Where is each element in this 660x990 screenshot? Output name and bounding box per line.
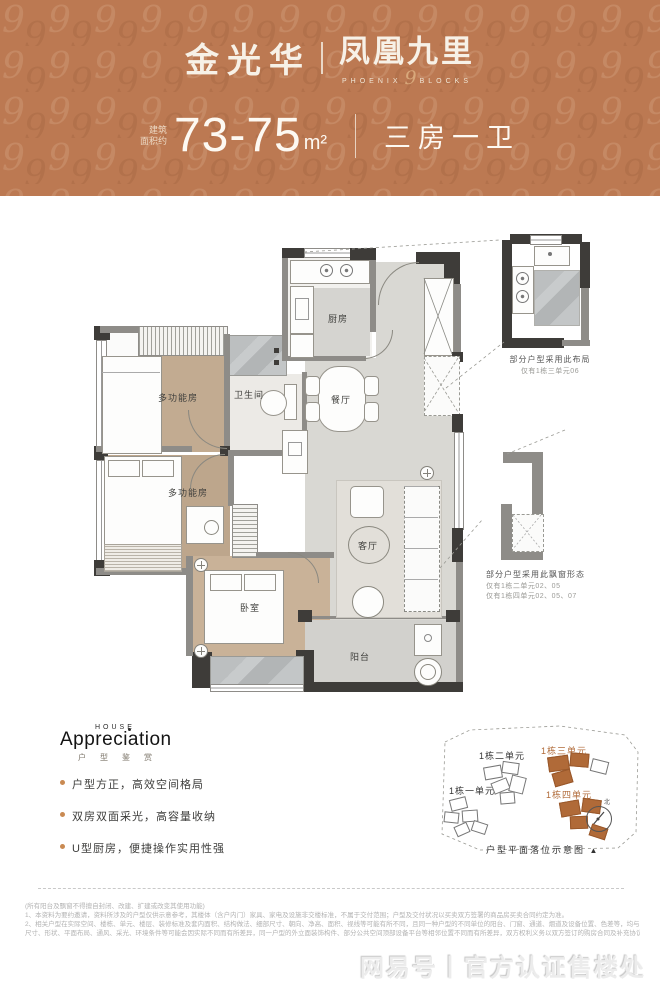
project-name: 凤凰九里 bbox=[339, 26, 475, 71]
dining-chair bbox=[364, 402, 379, 422]
project-name-en: PHOENIX 9 BLOCKS bbox=[342, 73, 472, 89]
building-footprint bbox=[500, 791, 516, 804]
feature-bullet: 双房双面采光，高容量收纳 bbox=[60, 808, 216, 824]
bay-window-dashed bbox=[424, 356, 460, 416]
header-banner: 9 9 金光华 凤凰九里 PHOENIX 9 BLOCKS 建筑 面积约 bbox=[0, 0, 660, 196]
pillow bbox=[210, 574, 242, 591]
callout-kitchen-note: 仅有1栋三单元06 bbox=[488, 366, 612, 376]
brand-row: 金光华 凤凰九里 PHOENIX 9 BLOCKS bbox=[0, 26, 660, 89]
bullet-dot-icon bbox=[60, 812, 65, 817]
room-label-kitchen: 厨房 bbox=[328, 312, 348, 325]
room-label-dining: 餐厅 bbox=[331, 393, 351, 406]
bed-pillow-line bbox=[102, 372, 160, 373]
callout-burner-icon bbox=[516, 272, 529, 285]
callout-burner-icon bbox=[516, 290, 529, 303]
compass-icon bbox=[586, 806, 612, 832]
wall-segment bbox=[370, 260, 376, 332]
toilet-bowl bbox=[260, 390, 287, 416]
wall-segment bbox=[186, 556, 193, 656]
room-label-living: 客厅 bbox=[358, 539, 378, 552]
dining-chair bbox=[305, 402, 320, 422]
lounge-chair bbox=[352, 586, 384, 618]
washing-machine-drum bbox=[420, 664, 436, 680]
wall-segment bbox=[100, 326, 140, 333]
disclaimer-line: 尺寸、形状、平面布局、通风、采光、环境条件等可能会因实际不同而有所差异，同一户型… bbox=[25, 929, 640, 938]
siteplan-caption: 户型平面落位示意图 ▲ bbox=[486, 843, 597, 856]
area-prefix-line2: 面积约 bbox=[140, 136, 167, 146]
kitchen-cabinet bbox=[290, 334, 314, 358]
bullet-dot-icon bbox=[60, 844, 65, 849]
project-en-right: BLOCKS bbox=[420, 78, 472, 85]
callout-wall bbox=[502, 338, 564, 348]
callout-wall bbox=[581, 288, 589, 344]
balcony-sink-basin bbox=[424, 634, 432, 642]
building-footprint bbox=[471, 820, 489, 835]
callout-kitchen-title: 部分户型采用此布局 bbox=[488, 354, 612, 365]
siteplan-caption-text: 户型平面落位示意图 bbox=[486, 845, 585, 855]
dotted-divider bbox=[38, 888, 624, 889]
room-label-bathroom: 卫生间 bbox=[234, 388, 264, 401]
wall-segment bbox=[298, 610, 312, 622]
building-footprint-highlight bbox=[569, 752, 589, 768]
room-label-multi-lower: 多功能房 bbox=[168, 486, 208, 499]
feature-text: U型厨房，便捷操作实用性强 bbox=[72, 840, 225, 856]
kitchen-window bbox=[304, 248, 352, 258]
callout-window bbox=[530, 235, 562, 245]
plant-icon bbox=[420, 466, 434, 480]
shower-marble-floor bbox=[229, 335, 287, 376]
project-en-left: PHOENIX bbox=[342, 78, 402, 85]
callout-sink-drain bbox=[548, 252, 552, 256]
disclaimer-line: (所有阳台及飘窗不得擅自封闭、改建、扩建或改变其使用功能) bbox=[25, 902, 640, 911]
triangle-marker-icon: ▲ bbox=[590, 846, 598, 855]
nightstand-lamp-icon bbox=[194, 558, 208, 572]
disclaimer-line: 1、本资料为要约邀请，资料所涉及的户型仅供示意参考，其楼体（含户内门）家具、家电… bbox=[25, 911, 640, 920]
bedroom-bay-sill bbox=[210, 684, 304, 692]
pillow bbox=[244, 574, 276, 591]
wall-segment bbox=[446, 610, 460, 622]
bedroom-bay-window bbox=[210, 656, 304, 686]
siteplan-label-unit1: 1栋一单元 bbox=[449, 784, 495, 797]
bullet-dot-icon bbox=[60, 780, 65, 785]
shaft-box bbox=[424, 278, 454, 356]
feature-text: 户型方正，高效空间格局 bbox=[72, 776, 204, 792]
kitchen-sink-basin bbox=[295, 298, 309, 320]
stove-burner-icon bbox=[340, 264, 353, 277]
area-prefix: 建筑 面积约 bbox=[140, 125, 167, 147]
appreciation-subtitle: 户型鉴赏 bbox=[78, 752, 166, 763]
shower-control bbox=[274, 360, 279, 365]
feature-bullet: U型厨房，便捷操作实用性强 bbox=[60, 840, 225, 856]
compass-north-label: 北 bbox=[604, 797, 610, 806]
brand-name-left: 金光华 bbox=[185, 33, 311, 82]
living-window bbox=[454, 432, 464, 530]
stove-burner-icon bbox=[320, 264, 333, 277]
area-row: 建筑 面积约 73-75 m² 三房一卫 bbox=[0, 108, 660, 163]
shower-head bbox=[274, 348, 279, 353]
dining-chair bbox=[305, 376, 320, 396]
building-footprint bbox=[483, 765, 503, 781]
callout-wall bbox=[580, 242, 590, 288]
pillow bbox=[142, 460, 174, 477]
wall-segment bbox=[300, 682, 463, 692]
wall-segment bbox=[350, 248, 376, 260]
sofa-cushion-lines bbox=[404, 486, 438, 610]
feature-text: 双房双面采光，高容量收纳 bbox=[72, 808, 216, 824]
bed-blanket bbox=[104, 544, 182, 572]
area-value: 73-75 bbox=[174, 108, 302, 163]
callout-wall bbox=[562, 340, 590, 346]
multi-upper-bed bbox=[102, 356, 162, 454]
wardrobe-hatch bbox=[232, 504, 258, 558]
nine-glyph: 9 bbox=[405, 67, 417, 89]
watermark: 网易号丨官方认证售楼处 bbox=[360, 948, 646, 983]
area-unit: m² bbox=[304, 132, 327, 155]
wall-segment bbox=[282, 258, 288, 358]
callout-bay-note1: 仅有1栋二单元02、05 bbox=[486, 581, 560, 591]
brand-name-right: 凤凰九里 PHOENIX 9 BLOCKS bbox=[339, 26, 475, 89]
dining-chair bbox=[364, 376, 379, 396]
appreciation-title: Appreciation bbox=[60, 729, 172, 751]
room-label-balcony: 阳台 bbox=[350, 650, 370, 663]
callout-wall bbox=[502, 240, 512, 346]
callout-bay-title: 部分户型采用此飘窗形态 bbox=[486, 569, 585, 580]
callout-sink bbox=[534, 246, 570, 266]
callout-bay-note2: 仅有1栋四单元02、05、07 bbox=[486, 591, 577, 601]
poster: 9 9 金光华 凤凰九里 PHOENIX 9 BLOCKS 建筑 面积约 bbox=[0, 0, 660, 990]
area-prefix-line1: 建筑 bbox=[149, 125, 167, 135]
wall-segment bbox=[282, 248, 306, 258]
disclaimer-line: 2、相关户型在实际空间、楼栋、单元、楼层、装修标准及套内面积、结构做法、细部尺寸… bbox=[25, 920, 640, 929]
callout-bay-window-box bbox=[512, 514, 544, 552]
building-footprint-highlight bbox=[559, 799, 581, 817]
wall-segment bbox=[456, 562, 463, 684]
nightstand-lamp-icon bbox=[194, 644, 208, 658]
area-divider bbox=[355, 114, 356, 158]
wall-segment bbox=[228, 452, 234, 506]
vanity-basin bbox=[288, 442, 302, 456]
pillow bbox=[108, 460, 140, 477]
top-bay-hatch bbox=[138, 326, 228, 356]
brand-divider bbox=[321, 42, 323, 74]
building-footprint bbox=[453, 822, 470, 838]
desk-chair bbox=[204, 520, 219, 535]
feature-bullet: 户型方正，高效空间格局 bbox=[60, 776, 204, 792]
callout-kitchen-tile bbox=[534, 270, 580, 326]
coffee-table bbox=[350, 486, 384, 518]
building-footprint bbox=[501, 761, 520, 775]
wall-segment bbox=[452, 414, 463, 432]
wall-segment bbox=[452, 528, 463, 562]
building-footprint bbox=[590, 758, 610, 775]
room-label-multi-upper: 多功能房 bbox=[158, 391, 198, 404]
callout-bay-wall bbox=[532, 452, 543, 514]
room-label-bedroom: 卧室 bbox=[240, 601, 260, 614]
layout-type: 三房一卫 bbox=[384, 116, 520, 155]
building-footprint bbox=[443, 811, 459, 824]
